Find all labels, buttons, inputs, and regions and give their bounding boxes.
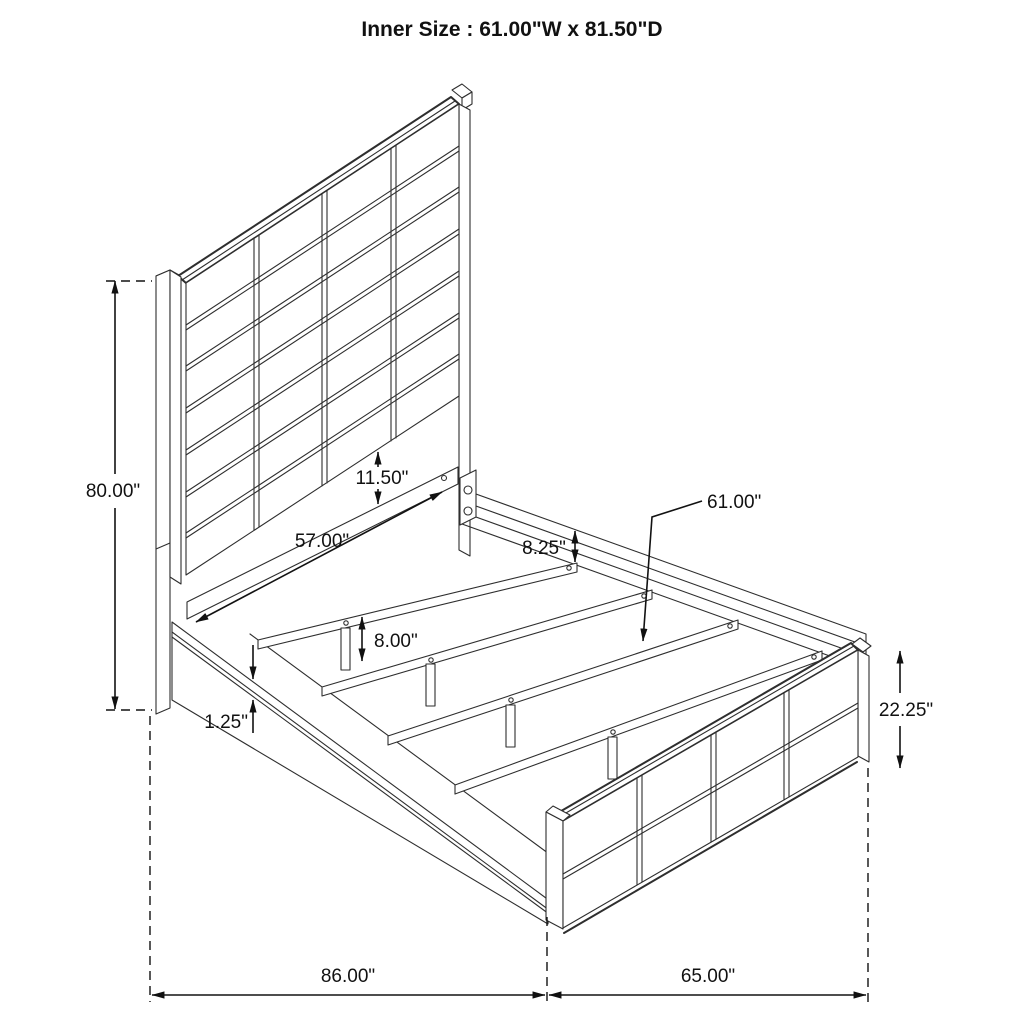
slat	[322, 590, 652, 696]
dim-overall-width: 65.00"	[681, 966, 735, 987]
slat	[388, 620, 738, 745]
footboard	[546, 638, 871, 933]
dim-support-leg-height: 8.00"	[374, 631, 418, 652]
headboard-left-post	[156, 270, 170, 714]
assembly-diagram-page: Inner Size : 61.00"W x 81.50"D 80.00" 11…	[0, 0, 1024, 1024]
dim-footboard-height: 22.25"	[879, 700, 933, 721]
slat-leg	[426, 664, 435, 706]
dim-rail-lip-thickness: 1.25"	[204, 712, 248, 733]
footboard-left-stile	[546, 812, 563, 929]
dim-slat-length: 61.00"	[707, 492, 761, 513]
rail-mounting-bracket	[460, 470, 476, 525]
diagram-title: Inner Size : 61.00"W x 81.50"D	[361, 18, 662, 41]
dim-panel-to-rail-gap: 11.50"	[356, 468, 409, 489]
slat-leg	[506, 705, 515, 747]
footboard-right-post	[858, 650, 869, 762]
slat-leg	[341, 628, 350, 670]
headboard-left-edge	[170, 270, 181, 584]
headboard	[156, 84, 472, 714]
dim-rail-above-slat: 8.25"	[522, 538, 566, 559]
slat-leg	[608, 737, 617, 779]
dim-cross-rail-length: 57.00"	[295, 531, 349, 552]
dim-overall-depth: 86.00"	[321, 966, 375, 987]
dim-overall-height: 80.00"	[86, 481, 140, 502]
bed-assembly-diagram: Inner Size : 61.00"W x 81.50"D 80.00" 11…	[0, 0, 1024, 1024]
